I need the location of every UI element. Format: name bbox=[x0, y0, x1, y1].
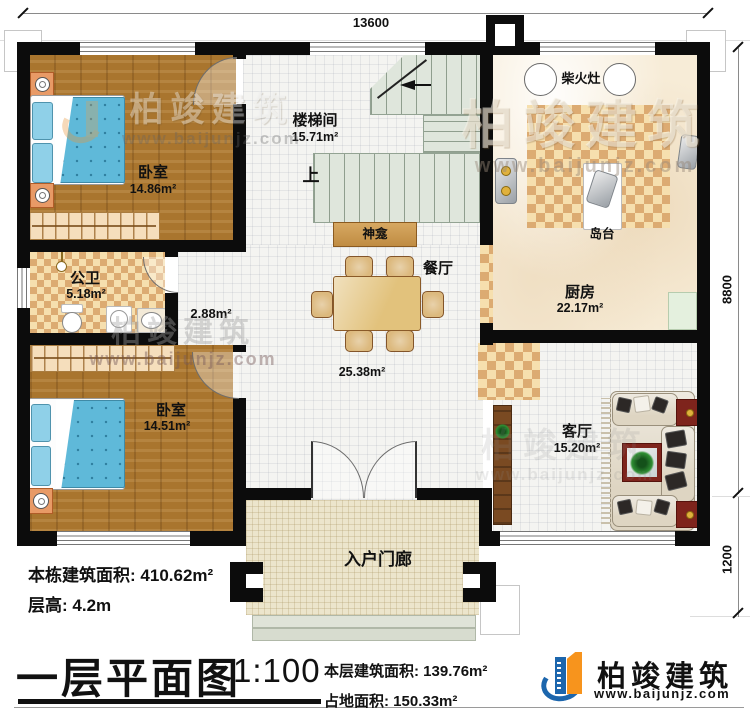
toilet-icon bbox=[62, 312, 82, 333]
bedroom2-name: 卧室 bbox=[141, 403, 201, 420]
living-area: 15.20m² bbox=[550, 442, 604, 455]
cabinet-plant-icon bbox=[495, 424, 510, 439]
wall bbox=[480, 42, 493, 245]
floor-plan-page: 神龛 bbox=[0, 0, 750, 716]
floor-area-value: 139.76m² bbox=[423, 663, 487, 680]
lamp-icon bbox=[35, 188, 50, 203]
stairwell-area: 15.71m² bbox=[282, 131, 348, 144]
stove-label: 柴火灶 bbox=[549, 71, 613, 87]
wall bbox=[195, 42, 310, 55]
wall bbox=[165, 245, 178, 257]
total-area-value: 410.62m² bbox=[140, 566, 213, 585]
dining-chair bbox=[345, 256, 373, 278]
dining-chair bbox=[386, 330, 414, 352]
wardrobe bbox=[30, 345, 175, 372]
floor-area-line: 本层建筑面积: 139.76m² bbox=[324, 660, 487, 681]
corridor-area: 2.88m² bbox=[185, 307, 237, 320]
sink-icon bbox=[141, 312, 162, 329]
sofa-pillow bbox=[665, 451, 687, 470]
stair-lower-flight bbox=[313, 153, 483, 223]
extension-line-top bbox=[0, 40, 750, 41]
stairwell-name: 楼梯间 bbox=[278, 113, 352, 130]
floor-height-value: 4.2m bbox=[72, 596, 111, 615]
table-plant-icon bbox=[630, 451, 654, 475]
logo-building-orange bbox=[567, 652, 582, 694]
wall bbox=[17, 333, 178, 345]
floor-height-line: 层高: 4.2m bbox=[28, 591, 111, 616]
kitchen-name: 厨房 bbox=[556, 285, 604, 302]
island-label: 岛台 bbox=[577, 227, 627, 242]
tv-cabinet bbox=[493, 405, 512, 525]
dimension-line-right bbox=[738, 48, 739, 494]
footprint-label: 占地面积: bbox=[324, 693, 389, 710]
total-area-label: 本栋建筑面积: bbox=[28, 566, 136, 585]
window bbox=[80, 42, 195, 55]
bedroom1-area: 14.86m² bbox=[121, 183, 185, 196]
window bbox=[17, 268, 30, 308]
chimney bbox=[486, 15, 524, 55]
wall-stove bbox=[495, 158, 517, 204]
window bbox=[57, 531, 190, 546]
floor-height-label: 层高: bbox=[28, 596, 68, 615]
kitchen-doorway-floor bbox=[480, 245, 493, 323]
dimension-top-value: 13600 bbox=[330, 15, 412, 30]
dining-chair bbox=[386, 256, 414, 278]
living-name: 客厅 bbox=[553, 424, 601, 441]
scale-value: 1:100 bbox=[233, 652, 321, 690]
total-area-line: 本栋建筑面积: 410.62m² bbox=[28, 561, 213, 586]
sofa-pillow bbox=[635, 499, 652, 516]
dimension-line-right-porch bbox=[738, 497, 739, 617]
wall bbox=[697, 42, 710, 546]
wall bbox=[165, 293, 178, 333]
bed-pillow bbox=[31, 446, 51, 486]
title-underline-thick bbox=[18, 699, 321, 704]
wall bbox=[246, 488, 311, 500]
dining-table bbox=[333, 276, 421, 331]
window bbox=[500, 531, 675, 546]
bedroom1-name: 卧室 bbox=[121, 165, 185, 182]
stair-arrow-stem bbox=[413, 84, 431, 86]
dimension-line-top bbox=[22, 13, 708, 14]
brand-site: www.baijunjz.com bbox=[594, 686, 730, 701]
floor-area-label: 本层建筑面积: bbox=[324, 663, 419, 680]
wall bbox=[190, 531, 246, 546]
washer-drum-icon bbox=[110, 310, 128, 328]
wall bbox=[675, 531, 710, 546]
dining-name: 餐厅 bbox=[416, 261, 460, 278]
bed-pillow bbox=[31, 404, 51, 442]
footprint-line: 占地面积: 150.33m² bbox=[324, 690, 457, 711]
kitchen-green-mat bbox=[668, 292, 697, 330]
bathroom-name: 公卫 bbox=[61, 271, 109, 288]
stairs-up-label: 上 bbox=[298, 167, 324, 186]
wall bbox=[17, 531, 57, 546]
logo-building-windows bbox=[557, 661, 561, 689]
wall bbox=[417, 488, 479, 500]
dining-area: 25.38m² bbox=[336, 366, 388, 379]
wall bbox=[493, 330, 710, 343]
sofa-fringe bbox=[601, 398, 611, 524]
porch-pillar-notch bbox=[463, 574, 480, 588]
window bbox=[540, 42, 655, 55]
dining-chair bbox=[311, 291, 333, 318]
bed-pillow bbox=[32, 143, 53, 183]
lamp-icon bbox=[35, 77, 50, 92]
porch-pillar-notch bbox=[246, 574, 263, 588]
footprint-value: 150.33m² bbox=[393, 693, 457, 710]
sofa-pillow bbox=[616, 397, 633, 414]
porch-step-1 bbox=[252, 615, 476, 628]
sofa-pillow bbox=[665, 429, 687, 448]
dimension-porch-value: 1200 bbox=[720, 538, 735, 582]
porch-name: 入户门廊 bbox=[336, 551, 420, 570]
sofa-pillow bbox=[633, 395, 651, 413]
extension-line-right-lower bbox=[690, 616, 750, 617]
bedroom2-area: 14.51m² bbox=[134, 420, 200, 433]
porch-step-2 bbox=[252, 628, 476, 641]
wall bbox=[17, 42, 30, 268]
nightstand bbox=[30, 183, 54, 208]
window bbox=[310, 42, 425, 55]
wall bbox=[17, 240, 246, 252]
nightstand bbox=[30, 72, 54, 97]
shrine-label: 神龛 bbox=[362, 227, 387, 242]
dining-chair bbox=[422, 291, 444, 318]
page-title: 一层平面图 bbox=[16, 645, 241, 706]
bathroom-area: 5.18m² bbox=[59, 288, 113, 301]
washing-machine bbox=[106, 306, 132, 333]
dining-chair bbox=[345, 330, 373, 352]
nightstand bbox=[28, 488, 53, 514]
wall bbox=[479, 531, 500, 546]
stair-mid-flight bbox=[423, 115, 483, 153]
sofa-pillow bbox=[617, 499, 634, 516]
wall bbox=[480, 323, 493, 345]
burner-icon bbox=[501, 186, 511, 196]
burner-icon bbox=[501, 166, 511, 176]
kitchen-area: 22.17m² bbox=[552, 302, 608, 315]
wardrobe bbox=[28, 212, 160, 240]
kitchen-passage-floor bbox=[478, 343, 540, 400]
shrine-cabinet: 神龛 bbox=[333, 222, 417, 247]
wall bbox=[233, 345, 246, 352]
wall bbox=[233, 104, 246, 252]
lamp-icon bbox=[33, 493, 49, 509]
dimension-side-value: 8800 bbox=[720, 268, 735, 312]
bed-pillow bbox=[32, 102, 53, 140]
brand-logo-icon bbox=[540, 649, 594, 707]
